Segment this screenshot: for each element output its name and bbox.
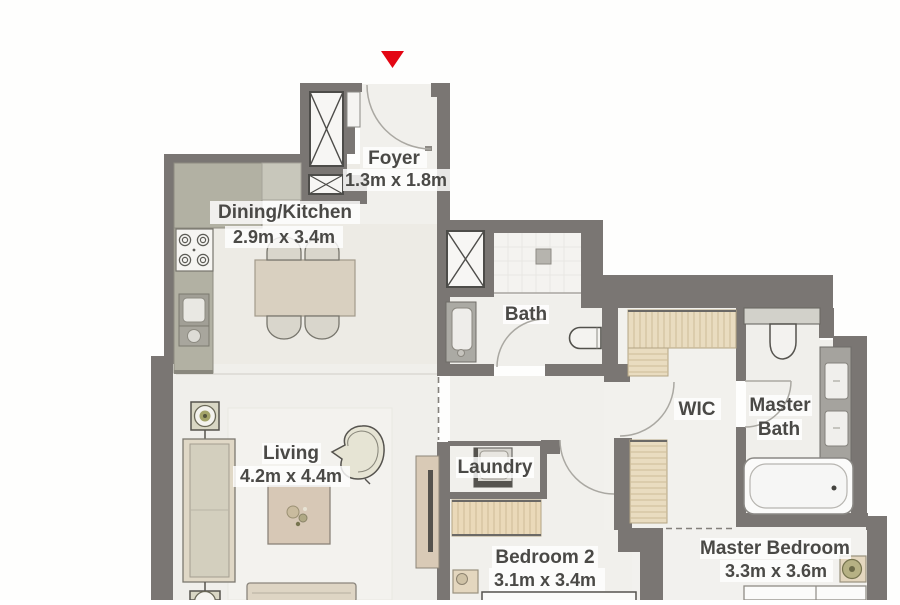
svg-text:3.1m x 3.4m: 3.1m x 3.4m xyxy=(494,570,596,590)
svg-text:3.3m x 3.6m: 3.3m x 3.6m xyxy=(725,561,827,581)
svg-text:Living: Living xyxy=(263,443,319,464)
svg-text:Bath: Bath xyxy=(758,419,800,440)
svg-text:Foyer: Foyer xyxy=(368,148,420,169)
svg-text:Master: Master xyxy=(749,395,811,416)
svg-text:Bedroom 2: Bedroom 2 xyxy=(495,547,594,568)
svg-text:2.9m x 3.4m: 2.9m x 3.4m xyxy=(233,227,335,247)
svg-text:Master Bedroom: Master Bedroom xyxy=(700,538,850,559)
svg-text:Bath: Bath xyxy=(505,304,547,325)
svg-text:WIC: WIC xyxy=(679,399,716,420)
svg-text:Laundry: Laundry xyxy=(458,457,533,478)
svg-text:1.3m x 1.8m: 1.3m x 1.8m xyxy=(345,170,447,190)
svg-text:Dining/Kitchen: Dining/Kitchen xyxy=(218,202,352,223)
svg-text:4.2m x 4.4m: 4.2m x 4.4m xyxy=(240,466,342,486)
